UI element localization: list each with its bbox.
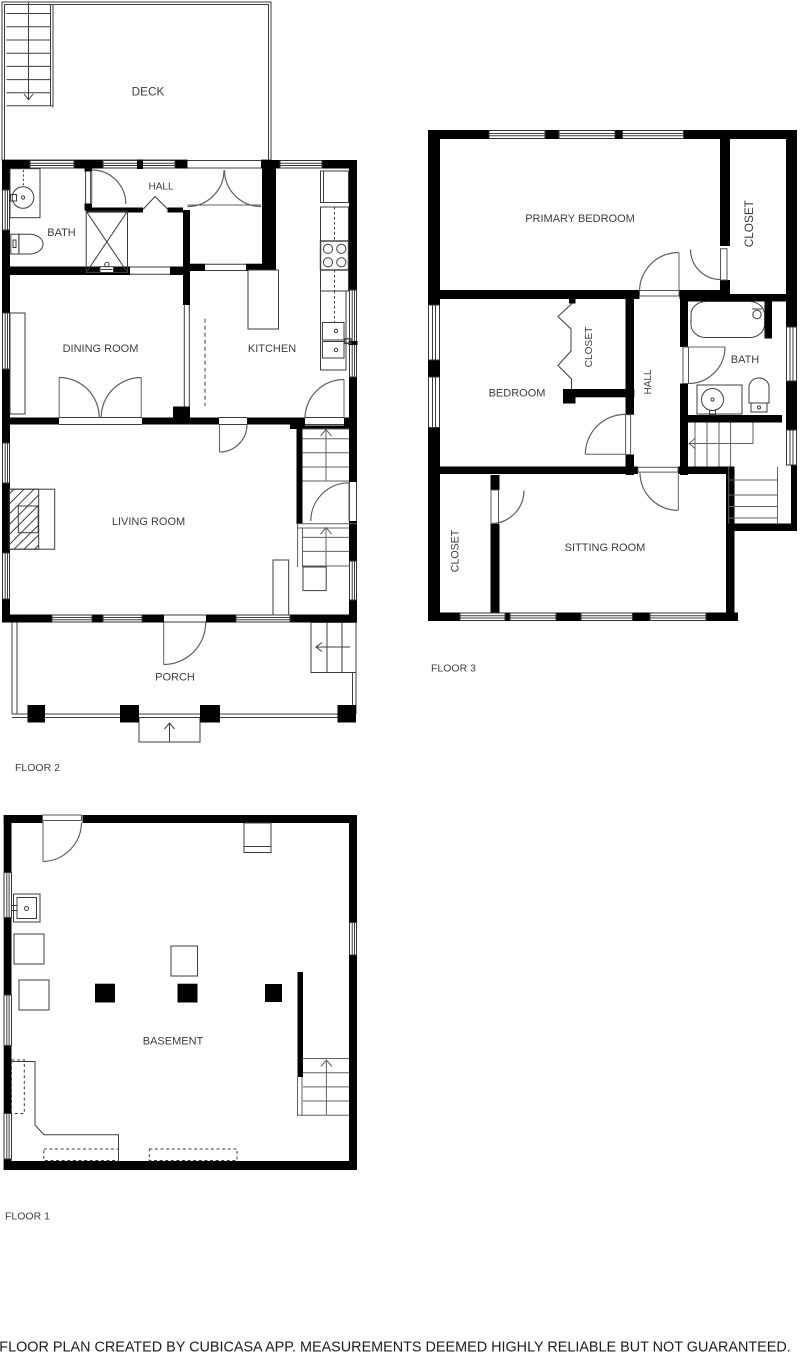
svg-text:HALL: HALL [643, 369, 654, 394]
svg-text:PORCH: PORCH [155, 672, 195, 684]
svg-text:BATH: BATH [731, 354, 760, 366]
svg-text:FLOOR PLAN CREATED BY CUBICASA: FLOOR PLAN CREATED BY CUBICASA APP. MEAS… [0, 1340, 791, 1356]
svg-text:DINING ROOM: DINING ROOM [63, 343, 139, 355]
svg-text:DECK: DECK [132, 85, 165, 99]
svg-text:CLOSET: CLOSET [450, 529, 462, 572]
svg-text:SITTING ROOM: SITTING ROOM [565, 542, 646, 554]
svg-text:BASEMENT: BASEMENT [143, 1036, 204, 1048]
svg-text:FLOOR 1: FLOOR 1 [5, 1210, 50, 1222]
svg-text:LIVING ROOM: LIVING ROOM [112, 516, 185, 528]
svg-text:CLOSET: CLOSET [742, 200, 756, 247]
svg-text:BATH: BATH [47, 227, 76, 239]
svg-text:FLOOR 3: FLOOR 3 [431, 662, 476, 674]
svg-text:FLOOR 2: FLOOR 2 [15, 762, 60, 774]
svg-text:KITCHEN: KITCHEN [248, 343, 296, 355]
svg-text:BEDROOM: BEDROOM [489, 388, 546, 400]
svg-text:HALL: HALL [148, 182, 173, 193]
svg-text:CLOSET: CLOSET [584, 327, 595, 368]
svg-text:PRIMARY BEDROOM: PRIMARY BEDROOM [525, 213, 635, 225]
